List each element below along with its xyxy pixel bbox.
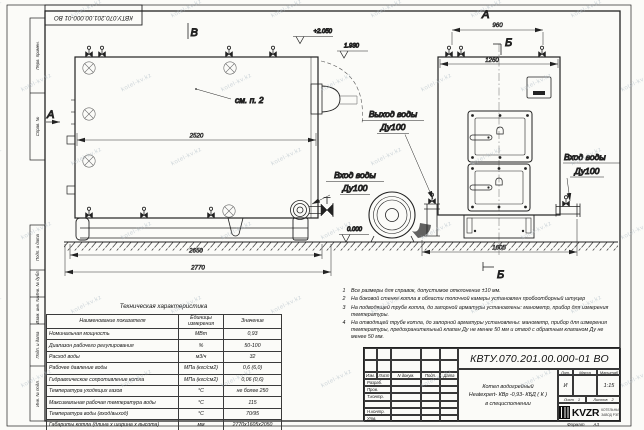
stamp-header-izm: Изм. (364, 372, 377, 379)
stamp-cell (391, 408, 421, 415)
tech-header-name: Наименование показателя (47, 315, 179, 329)
drawing-title: Котел водогрейный Heatexpert- КВр -0,93-… (458, 369, 558, 422)
valve-icon (446, 46, 453, 57)
revision-cell (391, 348, 421, 360)
tech-cell: °С (179, 408, 224, 419)
tech-row: Номинальная мощностьМВт0,93 (47, 329, 282, 340)
dim-2650: 2650 (188, 248, 203, 255)
sheet-cell: Лист 1 (558, 396, 586, 403)
outlet-label-line1: Выход воды (369, 109, 418, 119)
tech-row: Температура воды (вход/выход)°С70/95 (47, 408, 282, 419)
engineering-drawing-sheet: Перв. примен. Справ. № Подп. и дата Инв.… (0, 0, 644, 430)
tech-cell: 70/95 (224, 408, 282, 419)
drawing-title-line3: в специсполнении (485, 400, 531, 408)
valve-icon (539, 46, 546, 57)
side-pipe-stub (67, 186, 75, 194)
ground-line (64, 242, 618, 251)
elevation-top: +2.050 (313, 29, 332, 35)
tech-cell: % (179, 340, 224, 351)
stamp-cell (421, 386, 440, 393)
see-note-label: см. п. 2 (235, 95, 264, 105)
tech-cell: °С (179, 397, 224, 408)
elevation-mid: 1.930 (344, 44, 360, 50)
sheet-label: Лист (564, 397, 574, 402)
sheets-cell: Листов 2 (586, 396, 621, 403)
stamp-cell (440, 386, 458, 393)
kvzr-logo-text: KVZR (572, 407, 599, 419)
tech-cell: Гидравлическое сопротивление котла (47, 374, 179, 385)
view-labels: В А А Б Б см. п. 2 +2.050 1.930 0.000 Вы… (46, 9, 620, 281)
tech-cell: МВт (179, 329, 224, 340)
water-outlet-pipe (412, 204, 440, 238)
revision-cell (377, 360, 391, 372)
note-number: 3 (337, 305, 351, 319)
stamp-cell (440, 393, 458, 400)
tech-row: Расход водым3/ч32 (47, 351, 282, 362)
tech-cell: 50-100 (224, 340, 282, 351)
position-marker-icon (223, 205, 235, 217)
margin-label: Подп. и дата (35, 233, 40, 261)
stamp-header-ndoc: N докум. (391, 372, 421, 379)
tech-table-title: Техническая характеристика (46, 303, 281, 314)
skid-foot (76, 218, 89, 240)
furnace-door-upper (468, 111, 532, 162)
tech-cell: 0,93 (224, 329, 282, 340)
tech-cell: мм (179, 420, 224, 430)
furnace-door-lower (468, 164, 530, 211)
title-block: Изм. Лист N докум. Подп. Дата Разраб. Пр… (363, 347, 620, 421)
view-label-a-top: А (481, 9, 489, 21)
revision-cell (421, 348, 440, 360)
skid-foot (293, 218, 308, 240)
document-number: КВТУ.070.201.00.000-01 ВО (458, 348, 621, 369)
company-name-line2: ЗАВОД РЭП (601, 413, 621, 417)
note-number: 1 (337, 288, 351, 295)
tech-cell: 2770х1605х2050 (224, 420, 282, 430)
sheets-value: 2 (612, 397, 614, 402)
tech-cell: Температура уходящих газов (47, 385, 179, 396)
position-marker-icon (83, 62, 95, 74)
position-marker-icon (83, 108, 95, 120)
note-text: Все размеры для справок, допустимое откл… (351, 288, 618, 295)
valve-icon (270, 46, 277, 57)
stamp-header-list: Лист (377, 372, 391, 379)
stamp-cell (421, 401, 440, 408)
inlet-right-label-line2: Ду100 (574, 166, 600, 176)
company-logo: KVZR КОТЕЛЬНЫЙ ЗАВОД РЭП (558, 406, 621, 419)
margin-label: Подп. и дата (35, 331, 40, 359)
valve-icon (86, 46, 93, 57)
swing-arc (321, 61, 362, 124)
tech-cell: Расход воды (47, 351, 179, 362)
format-note: Формат А3 (545, 422, 621, 427)
drawing-title-line2: Heatexpert- КВр -0,93- КБД ( К ) (469, 391, 547, 399)
mass-value (573, 375, 597, 396)
tech-header-value: Значение (224, 315, 282, 329)
revision-cell (364, 360, 377, 372)
side-pipe-stub (67, 136, 75, 144)
tech-cell: Номинальная мощность (47, 329, 179, 340)
margin-label: Инв. № подл. (35, 380, 40, 407)
stamp-cell (421, 408, 440, 415)
stamp-cell (421, 393, 440, 400)
notes-list: 1Все размеры для справок, допустимое отк… (337, 288, 618, 343)
stamp-cell (391, 393, 421, 400)
format-label: Формат (567, 422, 584, 427)
stamp-cell (421, 379, 440, 386)
position-marker-icon (83, 155, 95, 167)
tech-header-units: Единицы измерения (179, 315, 224, 329)
note-item: 1Все размеры для справок, допустимое отк… (337, 288, 618, 295)
tech-row: Габариты котла (длина х ширина х высота)… (47, 420, 282, 430)
revision-cell (377, 348, 391, 360)
margin-label: Справ. № (35, 116, 40, 136)
stamp-cell (440, 408, 458, 415)
tech-cell: Габариты котла (длина х ширина х высота) (47, 420, 179, 430)
outlet-label-line2: Ду100 (380, 122, 406, 132)
tech-cell: 32 (224, 351, 282, 362)
stamp-row-label: Разраб. (364, 379, 391, 386)
flue-outlet (322, 86, 340, 112)
water-inlet-flange (291, 198, 334, 220)
note-item: 3На подводящей трубе котла, до запорной … (337, 305, 618, 319)
view-label-b-bottom: Б (497, 269, 504, 281)
tech-cell: м3/ч (179, 351, 224, 362)
format-value: А3 (594, 422, 599, 427)
tech-cell: Диапазон рабочего регулирования (47, 340, 179, 351)
stamp-cell (440, 401, 458, 408)
tech-row: Гидравлическое сопротивление котлаМПа (к… (47, 374, 282, 385)
stamp-row-label (364, 401, 391, 408)
dim-2520: 2520 (189, 133, 204, 140)
position-marker-icon (224, 62, 236, 74)
stamp-cell (440, 415, 458, 422)
stamp-header-podp: Подп. (421, 372, 440, 379)
tech-row: Диапазон рабочего регулирования%50-100 (47, 340, 282, 351)
dim-2770: 2770 (190, 265, 205, 272)
company-name-line1: КОТЕЛЬНЫЙ (601, 408, 621, 412)
inlet-left-label-line1: Вход воды (334, 170, 376, 180)
valve-icon (429, 193, 436, 204)
dim-1605: 1605 (492, 245, 506, 252)
note-item: 4На отводящей трубе котла, до запорной а… (337, 320, 618, 341)
company-cell: KVZR КОТЕЛЬНЫЙ ЗАВОД РЭП (558, 403, 621, 422)
drawing-title-line1: Котел водогрейный (482, 383, 533, 391)
view-label-a-left: А (46, 109, 54, 121)
revision-cell (391, 360, 421, 372)
tech-table: Техническая характеристика Наименование … (46, 303, 281, 430)
boiler-front-view (438, 44, 580, 256)
valve-icon (86, 207, 93, 218)
tech-row: Температура уходящих газов°Сне более 250 (47, 385, 282, 396)
note-text: На боковой стенке котла в области топочн… (351, 296, 618, 303)
blower-fan (369, 192, 415, 242)
stamp-cell (440, 379, 458, 386)
kvzr-logo-icon (558, 406, 570, 419)
stamp-row-label: Пров. (364, 386, 391, 393)
revision-cell (364, 348, 377, 360)
door-latch-icon (497, 127, 503, 134)
tech-cell: не более 250 (224, 385, 282, 396)
valve-icon (99, 46, 106, 57)
dim-960: 960 (492, 22, 503, 29)
margin-label: Перв. примен. (35, 41, 40, 70)
tech-row: Максимальная рабочая температура воды°С1… (47, 397, 282, 408)
revision-cell (421, 360, 440, 372)
stamp-cell (421, 415, 440, 422)
view-label-b-top: Б (505, 37, 512, 49)
dim-1260: 1260 (485, 57, 499, 64)
tech-row: Рабочее давление водыМПа (кгс/см2)0,6 (6… (47, 363, 282, 374)
valve-icon (141, 207, 148, 218)
note-item: 2На боковой стенке котла в области топоч… (337, 296, 618, 303)
boiler-side-view (67, 46, 440, 242)
elevation-zero: 0.000 (347, 227, 363, 233)
tech-cell: 0,6 (6,0) (224, 363, 282, 374)
tech-cell: МПа (кгс/см2) (179, 374, 224, 385)
stamp-cell (391, 379, 421, 386)
revision-cell (440, 348, 458, 360)
revision-cell (440, 360, 458, 372)
stamp-header-data: Дата (440, 372, 458, 379)
tech-cell: МПа (кгс/см2) (179, 363, 224, 374)
valve-icon (208, 207, 215, 218)
scale-value: 1:15 (597, 375, 621, 396)
view-label-v: В (191, 27, 198, 39)
valve-icon (458, 46, 465, 57)
tech-cell: °С (179, 385, 224, 396)
sheets-label: Листов (593, 397, 607, 402)
note-text: На отводящей трубе котла, до запорной ар… (351, 320, 618, 341)
stamp-row-label: Н.контр. (364, 408, 391, 415)
stamp-row-label: Т.контр. (364, 393, 391, 400)
stamp-cell (391, 415, 421, 422)
flue-duct (311, 84, 322, 114)
drain-funnel (228, 218, 243, 236)
stamp-cell (391, 401, 421, 408)
note-number: 2 (337, 296, 351, 303)
tech-cell: Максимальная рабочая температура воды (47, 397, 179, 408)
tech-table-grid: Наименование показателя Единицы измерени… (46, 314, 282, 430)
stamp-cell (391, 386, 421, 393)
inlet-right-label-line1: Вход воды (564, 152, 606, 162)
inlet-left-label-line2: Ду100 (342, 183, 368, 193)
tech-cell: 115 (224, 397, 282, 408)
margin-label: Инв. № дубл. (35, 270, 40, 296)
valve-icon (563, 196, 570, 207)
margin-label: Взам. инв. № (35, 297, 40, 324)
lit-value: И (558, 375, 573, 396)
sheet-value: 1 (578, 397, 580, 402)
tech-cell: Рабочее давление воды (47, 363, 179, 374)
tech-cell: Температура воды (вход/выход) (47, 408, 179, 419)
company-name: КОТЕЛЬНЫЙ ЗАВОД РЭП (601, 408, 621, 416)
corner-stamp-number: КВТУ.070.201.00.000-01 ВО (54, 14, 133, 21)
note-number: 4 (337, 320, 351, 341)
stamp-row-label: Утв. (364, 415, 391, 422)
tech-cell: 0,06 (0,6) (224, 374, 282, 385)
note-text: На подводящей трубе котла, до запорной а… (351, 305, 618, 319)
valve-icon (226, 46, 233, 57)
